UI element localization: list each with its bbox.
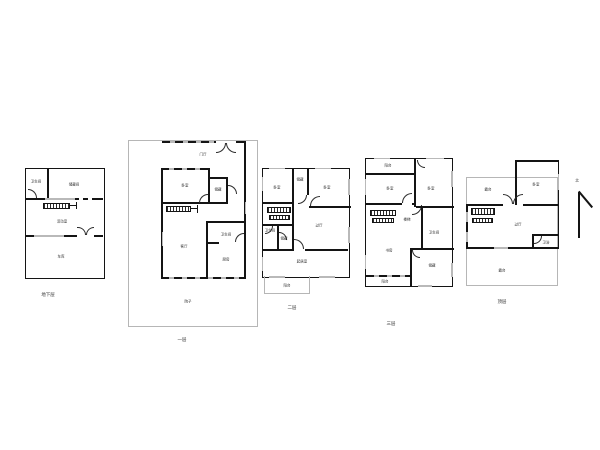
- wall: [515, 160, 559, 162]
- room-label: 车库: [58, 255, 65, 258]
- window-marker: [319, 276, 335, 278]
- room-label: 过厅: [515, 223, 522, 226]
- room-label: 卫生间: [265, 229, 275, 232]
- wall: [421, 206, 423, 249]
- door-arc: [86, 227, 95, 236]
- wall: [309, 206, 351, 208]
- room-label: 储藏: [281, 237, 288, 240]
- room-label: 院子: [185, 300, 192, 303]
- drawing-canvas: 卫生间 储藏间 活动室 车库 地下层 门厅: [0, 0, 600, 450]
- room-label: 储藏: [297, 178, 304, 181]
- north-label: 北: [575, 179, 578, 182]
- window-marker: [262, 177, 264, 191]
- wall: [206, 221, 208, 279]
- wall: [76, 202, 77, 209]
- room-label: 楼梯: [404, 218, 411, 221]
- floor-caption: 顶层: [497, 300, 506, 305]
- floor-caption: 三层: [386, 322, 395, 327]
- wall: [197, 205, 198, 213]
- wall: [292, 169, 294, 202]
- north-arrow-shaft: [578, 192, 580, 238]
- stair-hatch: [370, 210, 396, 216]
- wall: [208, 177, 228, 179]
- room-label: 储藏间: [69, 183, 79, 186]
- door-arc: [77, 227, 86, 236]
- room-label: 厨房: [223, 258, 230, 261]
- floor-caption: 一层: [177, 338, 186, 343]
- room-label: 书房: [386, 249, 393, 252]
- door-arc: [402, 193, 412, 203]
- room-label: 门厅: [200, 153, 207, 156]
- window-marker: [451, 171, 453, 187]
- stair-hatch: [372, 218, 394, 223]
- wall: [305, 249, 348, 251]
- plan-third-floor: 阳台 卧室 卧室 楼梯 书房 卫生间 储藏 阳台 三层: [365, 158, 453, 287]
- wall: [466, 247, 558, 249]
- door-arc: [298, 195, 307, 204]
- window-marker: [262, 257, 264, 271]
- wall: [208, 168, 210, 204]
- window-marker: [34, 235, 64, 237]
- window-marker: [162, 232, 163, 246]
- room-label: 卧室: [428, 187, 435, 190]
- window-marker: [374, 158, 390, 160]
- plan-ground-floor: 门厅 卧室 储藏 客厅 卫生间 厨房 院子 一层: [128, 140, 258, 327]
- stair-hatch: [269, 215, 290, 220]
- door-arc: [412, 250, 420, 258]
- window-marker: [494, 247, 508, 249]
- wall: [263, 249, 294, 251]
- wall: [161, 168, 210, 170]
- window-marker: [245, 202, 246, 214]
- wall: [47, 169, 49, 199]
- wall: [307, 169, 309, 195]
- wall: [26, 198, 45, 200]
- door-arc: [294, 239, 304, 249]
- wall: [410, 248, 412, 286]
- room-label: 客厅: [181, 245, 188, 248]
- room-label: 卧室: [274, 186, 281, 189]
- stair-hatch: [472, 218, 493, 223]
- wall: [161, 168, 163, 279]
- room-label: 卧室: [533, 183, 540, 186]
- window-marker: [466, 232, 468, 242]
- wall: [94, 235, 103, 237]
- wall: [162, 141, 216, 143]
- room-label: 阳台: [385, 164, 392, 167]
- room-label: 卧室: [182, 184, 189, 187]
- wall: [206, 221, 246, 223]
- window-marker: [45, 198, 75, 200]
- floor-caption: 地下层: [41, 293, 55, 298]
- window-marker: [365, 255, 367, 269]
- door-arc: [310, 196, 320, 206]
- room-label: 卧室: [324, 186, 331, 189]
- wall: [263, 202, 292, 204]
- stair-hatch: [267, 207, 291, 213]
- wall: [26, 235, 34, 237]
- floor-caption: 二层: [287, 306, 296, 311]
- stair-hatch: [471, 208, 495, 215]
- wall: [466, 204, 503, 206]
- wall: [414, 159, 416, 207]
- wall: [206, 242, 219, 244]
- window-marker: [269, 168, 285, 170]
- room-label: 卫生间: [221, 233, 231, 236]
- room-label: 露台: [485, 188, 492, 191]
- room-label: 卧室: [387, 187, 394, 190]
- room-label: 活动室: [57, 220, 67, 223]
- room-label: 储藏: [429, 264, 436, 267]
- room-label: 阳台: [284, 284, 291, 287]
- window-marker: [418, 285, 432, 287]
- window-marker: [348, 179, 350, 195]
- plan-top-floor: 露台 卧室 过厅 卫浴 露台 顶层: [466, 160, 560, 287]
- room-label: 卫生间: [429, 231, 439, 234]
- north-arrow-icon: 北: [570, 176, 596, 242]
- room-label: 卫生间: [31, 180, 41, 183]
- wall: [75, 198, 79, 200]
- door-arc: [417, 160, 425, 168]
- stair-hatch: [43, 203, 70, 209]
- window-marker: [558, 174, 559, 190]
- room-label: 过厅: [316, 224, 323, 227]
- wall: [366, 203, 402, 205]
- plan-basement: 卫生间 储藏间 活动室 车库 地下层: [25, 168, 105, 279]
- wall: [366, 173, 416, 175]
- stair-hatch: [166, 206, 191, 212]
- window-marker: [315, 168, 331, 170]
- wall: [161, 202, 228, 204]
- wall: [83, 198, 88, 200]
- north-arrow-head: [578, 191, 593, 208]
- wall: [523, 204, 558, 206]
- room-label: 露台: [499, 269, 506, 272]
- door-arc: [28, 189, 37, 198]
- window-marker: [466, 212, 468, 222]
- window-marker: [426, 158, 444, 160]
- plan-second-floor: 卧室 储藏 卧室 卫生间 储藏 过厅 起居室 阳台 二层: [262, 168, 350, 278]
- window-marker: [451, 263, 453, 277]
- window-marker: [365, 179, 367, 195]
- terrace-boundary: [466, 177, 558, 286]
- window-marker: [348, 227, 350, 243]
- room-label: 阳台: [382, 280, 389, 283]
- room-label: 起居室: [297, 260, 307, 263]
- room-label: 卫浴: [543, 241, 550, 244]
- wall: [64, 235, 77, 237]
- wall: [366, 275, 412, 277]
- wall: [92, 198, 103, 200]
- wall: [161, 277, 246, 279]
- room-label: 储藏: [215, 188, 222, 191]
